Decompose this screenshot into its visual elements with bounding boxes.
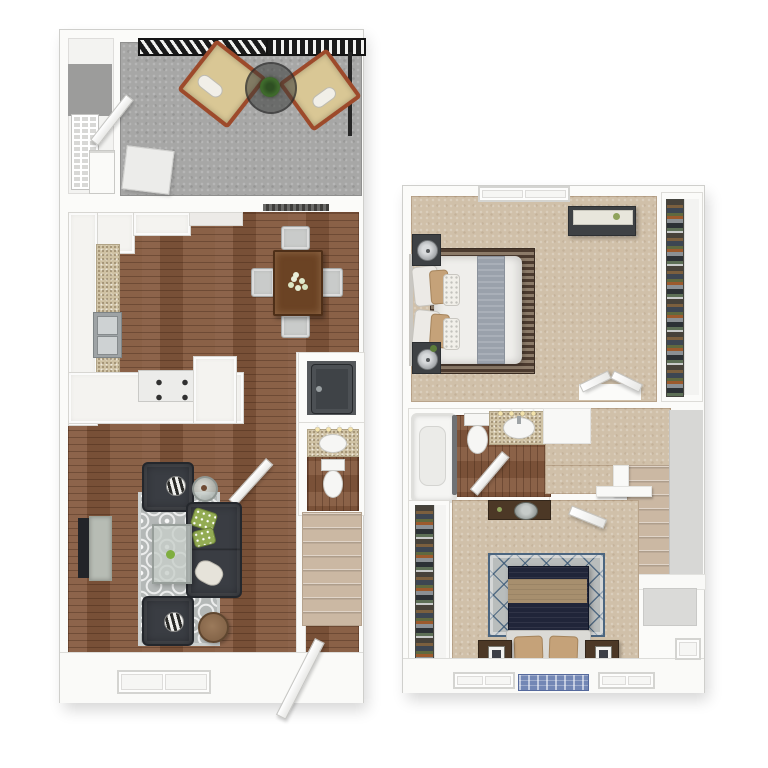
window-pane bbox=[121, 674, 163, 690]
plant-decor bbox=[430, 345, 437, 352]
dresser-decor bbox=[613, 213, 620, 220]
floorplan-canvas bbox=[0, 0, 768, 768]
dining-chair-bottom bbox=[281, 314, 310, 338]
lamp bbox=[417, 349, 438, 370]
vanity-lights bbox=[310, 425, 354, 432]
patio-equipment-pad bbox=[121, 145, 174, 195]
round-side-table bbox=[198, 612, 229, 643]
appliance-knob bbox=[316, 386, 322, 392]
washer-dryer bbox=[311, 364, 353, 414]
basket bbox=[514, 502, 538, 520]
patio-round-table bbox=[245, 62, 297, 114]
sink-basin-2 bbox=[97, 336, 118, 355]
faucet bbox=[517, 416, 521, 424]
dresser-top bbox=[573, 210, 633, 225]
window-pane bbox=[485, 676, 511, 685]
nightstand-bottom bbox=[412, 342, 441, 374]
nightstand-top bbox=[412, 234, 441, 266]
side-table-decor bbox=[201, 485, 207, 491]
dresser-knob bbox=[497, 507, 502, 512]
vanity-sink bbox=[319, 434, 347, 453]
half-wall-railing bbox=[596, 486, 652, 497]
blue-mat bbox=[518, 674, 589, 691]
water-heater bbox=[89, 150, 115, 194]
stairwell-side-wall bbox=[669, 410, 703, 577]
living-room-window bbox=[117, 670, 211, 694]
potted-plant bbox=[260, 77, 280, 97]
window-pane bbox=[602, 676, 626, 685]
upper-cabinet-b bbox=[133, 212, 191, 236]
glass-coffee-table bbox=[152, 524, 192, 584]
zebra-pillow bbox=[164, 612, 184, 632]
dining-table bbox=[273, 250, 323, 316]
window-pane bbox=[679, 642, 697, 656]
hanging-clothes bbox=[666, 199, 684, 397]
green-pillow-2 bbox=[191, 527, 216, 549]
bedroom2-window-right bbox=[598, 672, 655, 689]
window-pane bbox=[482, 190, 523, 198]
half-bathroom bbox=[298, 422, 365, 516]
closet-strip bbox=[434, 505, 446, 669]
master-dresser bbox=[568, 206, 636, 236]
window-pane bbox=[457, 676, 483, 685]
front-wall bbox=[60, 652, 363, 703]
vanity-lights bbox=[493, 409, 541, 416]
wall-vent bbox=[263, 204, 329, 211]
storage-back-wall bbox=[68, 64, 112, 116]
tub-basin bbox=[419, 426, 446, 486]
toilet-bowl bbox=[467, 425, 488, 454]
zebra-pillow bbox=[166, 476, 186, 496]
master-pillow-accent-2 bbox=[443, 318, 460, 350]
bath-sink bbox=[503, 417, 535, 439]
hanging-clothes bbox=[415, 505, 434, 671]
bedroom2-window-left bbox=[453, 672, 515, 689]
second-floor-plan bbox=[403, 186, 704, 692]
sectional-sofa bbox=[186, 502, 242, 598]
stairwell-side-window bbox=[675, 638, 701, 660]
lounge-pillow bbox=[195, 72, 226, 100]
upper-shelf-strip bbox=[189, 212, 243, 226]
window-pane bbox=[165, 674, 207, 690]
window-pane bbox=[525, 190, 566, 198]
bathroom bbox=[408, 408, 550, 502]
bedroom2-dresser bbox=[488, 500, 551, 520]
closet-panel bbox=[684, 199, 699, 395]
coffee-table-decor bbox=[166, 550, 175, 559]
utility-closet bbox=[298, 352, 365, 424]
stairwell-void bbox=[643, 588, 697, 626]
staircase-first-floor bbox=[302, 512, 362, 626]
flower-centerpiece bbox=[291, 276, 297, 282]
television bbox=[78, 518, 89, 578]
tv-console bbox=[89, 516, 112, 581]
sink-basin-1 bbox=[97, 316, 118, 335]
bedroom2-closet bbox=[408, 500, 450, 674]
walk-in-closet bbox=[661, 192, 703, 402]
dining-chair-top bbox=[281, 226, 310, 250]
armchair-bottom bbox=[142, 596, 194, 646]
peninsula-counter bbox=[193, 356, 237, 424]
bed-runner bbox=[477, 256, 505, 364]
range-stove bbox=[138, 370, 194, 402]
lounge-pillow bbox=[310, 85, 339, 111]
shower-curtain bbox=[452, 415, 457, 495]
dining-chair-left bbox=[251, 268, 275, 297]
master-pillow-accent-1 bbox=[443, 274, 460, 306]
window-pane bbox=[628, 676, 652, 685]
double-sink bbox=[93, 312, 122, 358]
toilet-bowl bbox=[323, 470, 343, 498]
first-floor-plan bbox=[60, 30, 363, 702]
lamp bbox=[417, 240, 438, 261]
linen-door-panel bbox=[543, 408, 591, 444]
master-window bbox=[478, 186, 570, 202]
bedroom2-bed-stripe bbox=[508, 579, 587, 603]
bathtub bbox=[411, 413, 457, 503]
white-pillow bbox=[191, 557, 226, 590]
glass-side-table bbox=[192, 476, 218, 502]
